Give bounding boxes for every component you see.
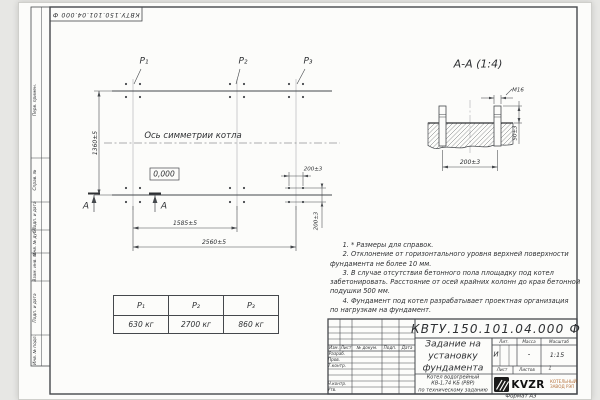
dim-label-50: 50±3: [513, 125, 519, 140]
loads-table-value-row: 630 кг 2700 кг 860 кг: [114, 316, 279, 334]
tb-row-prov: Пров.: [328, 358, 340, 362]
drawing-geometry: [0, 0, 600, 400]
margin-label-podp-data-2: Подп. и дата: [34, 293, 38, 322]
rotated-doc-number-stamp: КВТУ.150.101.04.000 Ф: [52, 11, 139, 17]
tb-listov-label: Листов: [519, 368, 535, 372]
section-title: А-А (1:4): [454, 59, 503, 70]
margin-label-inv-dubl: Инв. № дубл.: [34, 226, 38, 255]
tb-lit-label: Лит.: [499, 339, 509, 343]
object-name: Котел водогрейный КВ-1,74 КБ (РВР) по те…: [418, 374, 488, 393]
doc-number: КВТУ.150.101.04.000 Ф: [411, 323, 581, 335]
margin-label-perv-primen: Перв. примен.: [34, 84, 38, 116]
drawing-title: Задание на установку фундамента: [423, 338, 484, 373]
load-point-label-p2: P₂: [238, 58, 247, 67]
tb-row-utv: Утв.: [328, 388, 337, 392]
tb-list-label: Лист: [497, 368, 508, 372]
kvzr-logo-text: KVZR: [511, 379, 544, 390]
tb-col-podp: Подп.: [384, 346, 397, 350]
loads-header-p3: P₃: [224, 296, 279, 316]
loads-table: P₁ P₂ P₃ 630 кг 2700 кг 860 кг: [113, 295, 279, 334]
section-letter-left: А: [83, 203, 89, 212]
load-point-leaders: [134, 69, 305, 84]
margin-label-sprav-no: Справ. №: [34, 170, 38, 191]
loads-header-p1: P₁: [114, 296, 169, 316]
margin-label-inv-podl: Инв. № подл.: [34, 335, 38, 365]
loads-value-p2: 2700 кг: [169, 316, 224, 334]
kvzr-logo-caption: КОТЕЛЬНЫЙ ЗАВОД РЭП: [550, 380, 577, 390]
tb-lit-value: И: [493, 352, 498, 359]
symmetry-axis-label: Ось симметрии котла: [144, 132, 241, 141]
dim-m16: [481, 89, 513, 104]
elevation-mark: 0,000: [153, 170, 174, 178]
load-point-label-p1: P₁: [139, 58, 148, 67]
tb-row-nkontr: Н.контр.: [328, 382, 347, 386]
margin-label-vzam-inv: Взам. инв. №: [34, 252, 38, 281]
bolt-size-label: М16: [512, 88, 524, 94]
tb-scale-label: Масштаб: [549, 339, 569, 343]
loads-value-p3: 860 кг: [224, 316, 279, 334]
dim-label-1585: 1585±5: [173, 221, 197, 227]
dim-label-1360: 1360±5: [93, 131, 99, 155]
plan-view: [88, 69, 340, 251]
loads-value-p1: 630 кг: [114, 316, 169, 334]
load-point-label-p3: P₃: [303, 58, 312, 67]
drawing-sheet: kvzr.ru kvzr.ru kvzr.ru kvzr.ru kvzr.ru …: [0, 0, 600, 400]
tb-mass-value: -: [528, 352, 531, 359]
tb-mass-label: Масса: [522, 339, 535, 343]
tb-row-tkontr: Т.контр.: [328, 364, 346, 368]
tb-row-razrab: Разраб.: [329, 352, 345, 356]
loads-header-p2: P₂: [169, 296, 224, 316]
dim-label-200-section: 200±3: [460, 160, 480, 166]
tb-col-dokum: № докум.: [357, 346, 378, 350]
dim-label-bolt-y: 200±3: [314, 212, 320, 231]
loads-table-header-row: P₁ P₂ P₃: [114, 296, 279, 316]
section-letter-right: А: [161, 203, 167, 212]
tb-listov-value: 1: [548, 368, 551, 373]
kvzr-logo-icon: [494, 377, 509, 392]
tb-col-list: Лист: [341, 346, 352, 350]
dim-label-bolt-x: 200±3: [304, 167, 323, 173]
tb-col-data: Дата: [402, 346, 413, 350]
dim-label-2560: 2560±5: [202, 240, 226, 246]
technical-notes: 1. * Размеры для справок. 2. Отклонение …: [330, 241, 582, 315]
format-label: Формат А3: [505, 394, 536, 400]
tb-scale-value: 1:15: [550, 352, 565, 359]
tb-col-izm: Изм.: [329, 346, 339, 350]
section-cut-marks: [88, 194, 161, 213]
